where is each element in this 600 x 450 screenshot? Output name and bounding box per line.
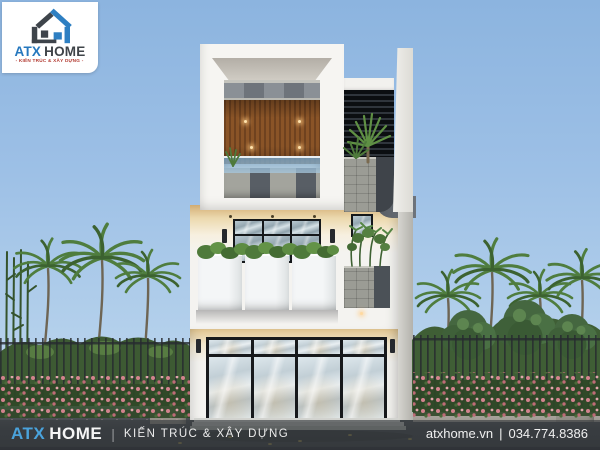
side-window <box>351 214 373 237</box>
wall-sconce <box>222 229 227 243</box>
palm-trunks <box>446 272 583 368</box>
atx-home-logo-icon <box>22 5 78 45</box>
soffit-downlight <box>271 215 274 218</box>
louver-screen <box>344 90 394 160</box>
palm-tree <box>547 249 600 295</box>
fence-pillar <box>150 362 186 424</box>
terrace-glass-railing <box>224 156 320 173</box>
wood-wall-light <box>250 146 253 149</box>
logo-card: ATXHOME - KIẾN TRÚC & XÂY DỰNG - <box>2 2 98 73</box>
logo-brand-primary: ATX <box>15 44 42 59</box>
accent-light <box>360 312 363 315</box>
wood-wall-light <box>244 120 247 123</box>
wood-wall-light <box>298 120 301 123</box>
footer-separator: | <box>499 426 502 441</box>
footer-brand-secondary: HOME <box>49 424 102 443</box>
soffit-downlight <box>313 215 316 218</box>
logo-wordmark: ATXHOME <box>15 45 86 58</box>
glass-door-panels <box>209 357 384 418</box>
footer-brand-primary: ATX <box>11 424 45 443</box>
terrace-ceiling <box>212 58 332 82</box>
bush <box>441 310 496 360</box>
soffit-downlight <box>229 215 232 218</box>
door-transom-windows <box>209 340 384 354</box>
logo-brand-secondary: HOME <box>44 44 85 59</box>
footer-tagline: KIẾN TRÚC & XÂY DỰNG <box>124 428 289 440</box>
wall-sconce <box>330 229 335 243</box>
side-return-wall <box>398 212 413 420</box>
stone-header-band <box>224 80 320 100</box>
palm-tree <box>116 250 180 292</box>
white-fin-wall <box>393 48 413 212</box>
rooftop-stone-planter <box>344 157 394 212</box>
balcony-planter <box>292 254 336 310</box>
ground-floor-glass-doors <box>206 337 387 421</box>
balcony-shadow <box>196 310 338 324</box>
footer-contact: atxhome.vn | 034.774.8386 <box>426 426 588 441</box>
palm-tree <box>60 224 143 279</box>
palm-trunks <box>44 260 148 356</box>
palm-tree <box>14 239 81 283</box>
wood-slat-wall <box>224 100 320 164</box>
bamboo-plants <box>6 250 36 390</box>
balcony-planter-boxes <box>198 254 336 310</box>
second-floor-stone-planter <box>344 266 390 308</box>
footer-brand: ATXHOME <box>11 424 102 444</box>
fence-pillar <box>556 358 594 422</box>
wall-sconce <box>390 339 395 353</box>
wall-sconce <box>196 339 201 353</box>
footer-bar: ATXHOME | KIẾN TRÚC & XÂY DỰNG atxhome.v… <box>0 420 600 447</box>
footer-divider: | <box>111 426 115 442</box>
fence-rail <box>0 342 190 345</box>
architecture-render: ATXHOME | KIẾN TRÚC & XÂY DỰNG atxhome.v… <box>0 0 600 450</box>
third-floor-terrace <box>224 80 320 198</box>
footer-website: atxhome.vn <box>426 426 493 441</box>
footer-phone: 034.774.8386 <box>508 426 588 441</box>
balcony-planter <box>198 254 242 310</box>
wood-wall-light <box>298 146 301 149</box>
palm-tree <box>508 270 572 312</box>
bush <box>495 300 556 355</box>
logo-tagline: - KIẾN TRÚC & XÂY DỰNG - <box>16 59 84 64</box>
balcony-planter <box>245 254 289 310</box>
palm-tree <box>454 239 531 289</box>
bush <box>548 314 598 359</box>
fence-rail <box>413 338 600 341</box>
palm-tree <box>416 270 480 312</box>
